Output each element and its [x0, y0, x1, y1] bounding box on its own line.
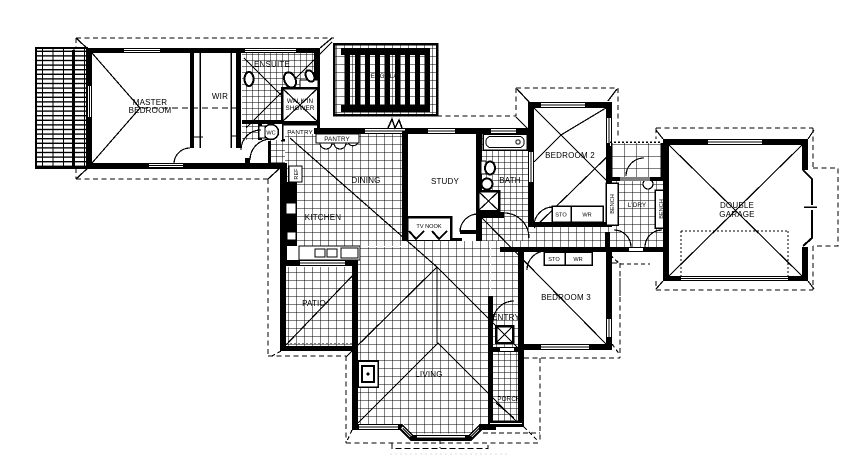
svg-text:PORCH: PORCH — [497, 396, 521, 403]
svg-text:KITCHEN: KITCHEN — [305, 213, 342, 222]
svg-text:PANTRY: PANTRY — [324, 136, 350, 143]
svg-text:STO: STO — [548, 257, 560, 263]
svg-text:TV NOOK: TV NOOK — [416, 224, 441, 230]
svg-text:GARAGE: GARAGE — [719, 210, 754, 219]
svg-text:WC: WC — [266, 131, 275, 137]
svg-text:DOUBLE: DOUBLE — [720, 201, 754, 210]
svg-text:STUDY: STUDY — [431, 177, 460, 186]
svg-text:WIR: WIR — [212, 92, 228, 101]
svg-text:BENCH: BENCH — [610, 194, 616, 214]
svg-text:DINING: DINING — [351, 176, 380, 185]
svg-text:STO: STO — [555, 213, 567, 219]
svg-text:BEDROOM: BEDROOM — [129, 106, 172, 115]
svg-text:BEDROOM 2: BEDROOM 2 — [545, 151, 595, 160]
svg-text:WR: WR — [582, 213, 591, 219]
svg-text:PATIO: PATIO — [302, 299, 326, 308]
svg-text:WALK IN: WALK IN — [287, 98, 314, 105]
svg-text:L'DRY: L'DRY — [628, 202, 647, 209]
svg-text:ENTRY: ENTRY — [492, 313, 520, 322]
svg-text:BEDROOM 3: BEDROOM 3 — [541, 293, 591, 302]
svg-text:BATH: BATH — [499, 176, 521, 185]
svg-text:REF: REF — [294, 168, 300, 180]
svg-text:SHOWER: SHOWER — [286, 105, 315, 112]
svg-text:WR: WR — [573, 257, 582, 263]
svg-text:ENSUITE: ENSUITE — [254, 60, 290, 69]
svg-text:LIVING: LIVING — [415, 370, 442, 379]
svg-text:PERGOLA: PERGOLA — [366, 73, 398, 80]
